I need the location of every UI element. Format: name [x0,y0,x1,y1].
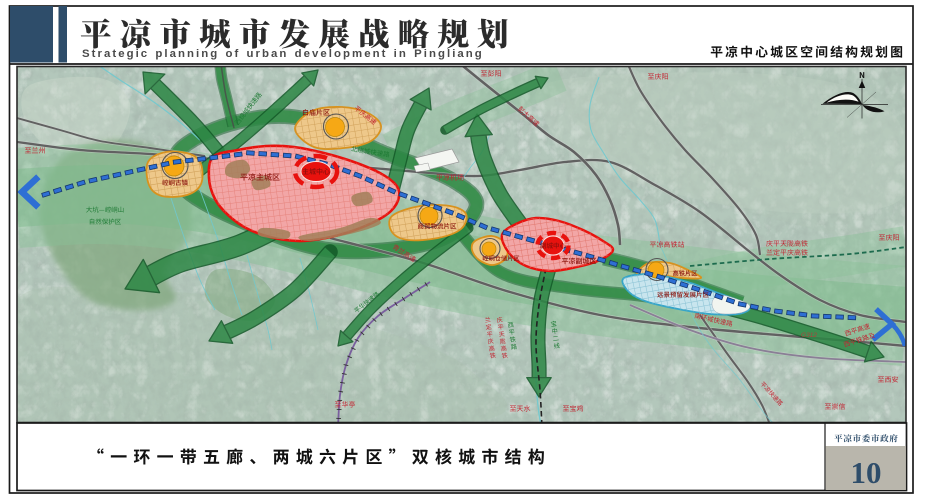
svg-text:G312: G312 [801,332,817,339]
svg-text:Strategic planning of urban de: Strategic planning of urban development … [82,48,484,60]
svg-text:10: 10 [851,455,882,490]
